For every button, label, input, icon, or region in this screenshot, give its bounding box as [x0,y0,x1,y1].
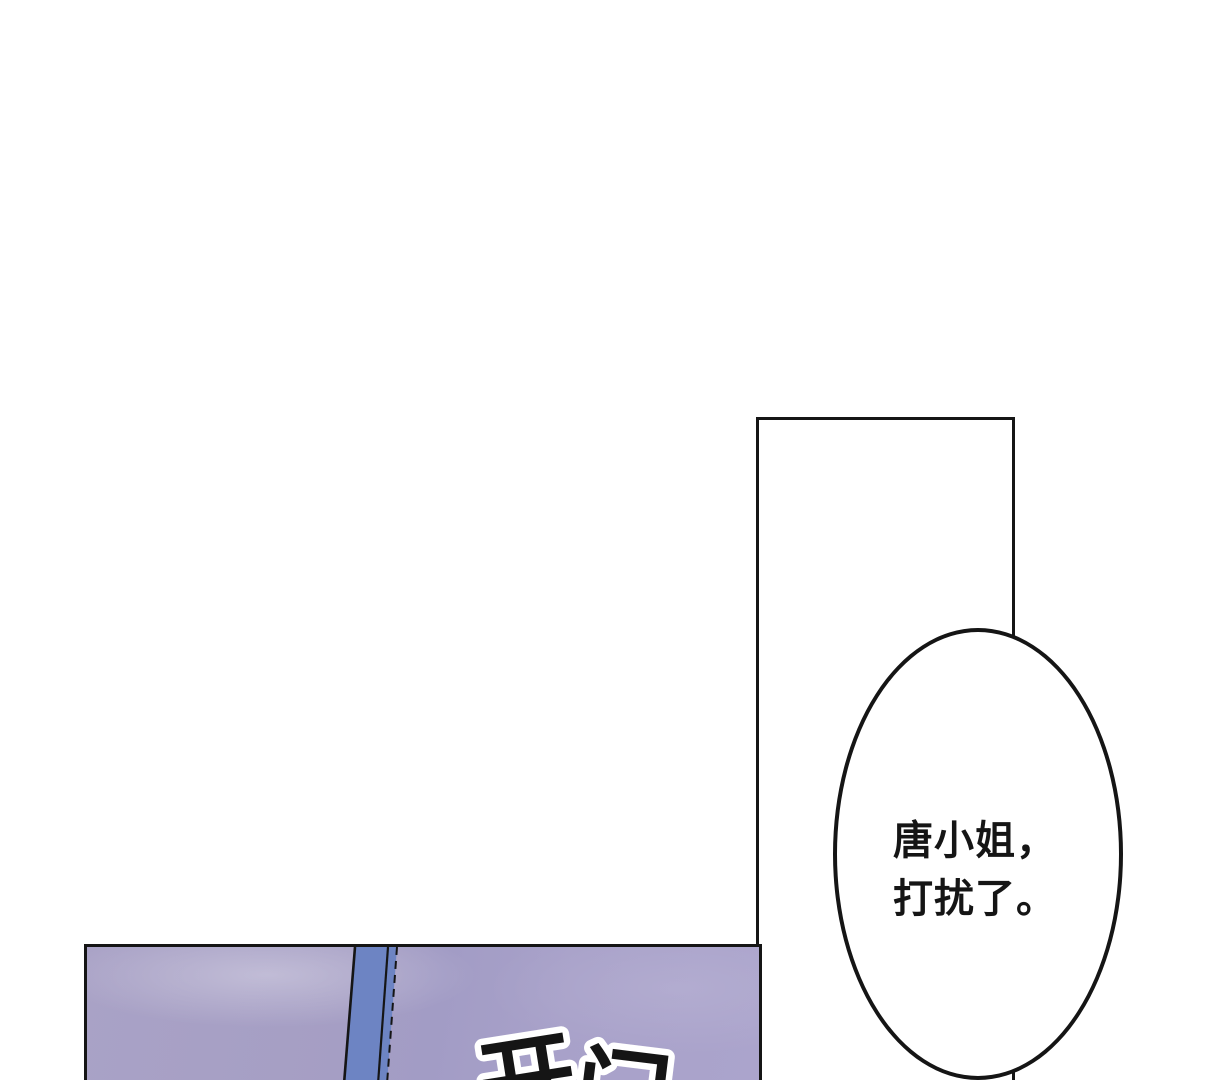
comic-page: 开 门 唐小姐， 打扰了。 [0,0,1227,1080]
speech-line-2: 打扰了。 [893,870,1057,928]
scream-char-kai: 开 [472,1022,584,1080]
door-frame-stripe [344,947,397,1080]
speech-line-1: 唐小姐， [893,812,1057,870]
scream-char-men: 门 [568,1037,676,1080]
scream-text: 开 门 [472,1022,676,1080]
speech-text: 唐小姐， 打扰了。 [893,812,1057,928]
door-scene-panel: 开 门 [84,944,762,1080]
door-scene-art: 开 门 [87,947,759,1080]
